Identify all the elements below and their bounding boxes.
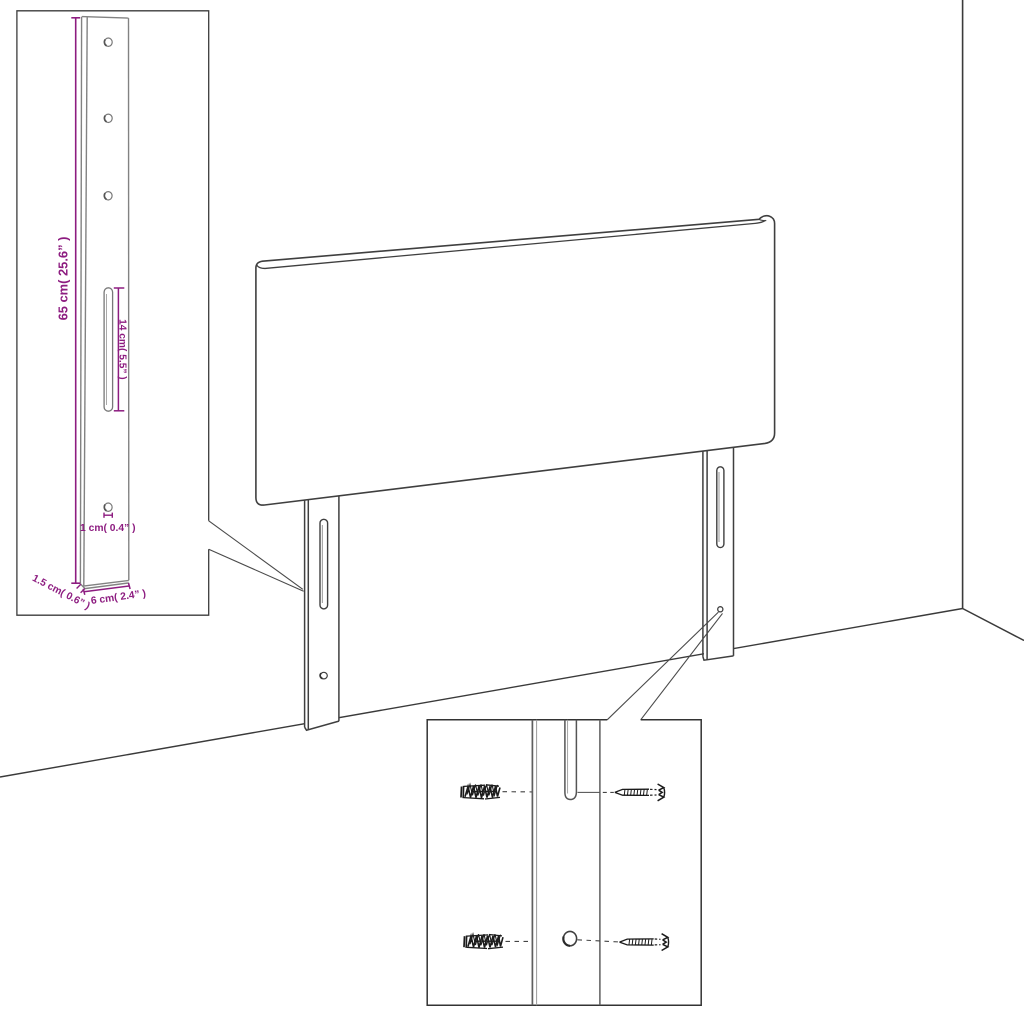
svg-text:1 cm( 0.4” ): 1 cm( 0.4” ) (80, 523, 136, 534)
svg-text:65 cm( 25.6” ): 65 cm( 25.6” ) (55, 237, 70, 321)
svg-text:6 cm( 2.4” ): 6 cm( 2.4” ) (90, 588, 147, 607)
svg-text:1.5 cm( 0.6” ): 1.5 cm( 0.6” ) (30, 573, 91, 612)
svg-text:14 cm( 5.5” ): 14 cm( 5.5” ) (116, 319, 127, 380)
